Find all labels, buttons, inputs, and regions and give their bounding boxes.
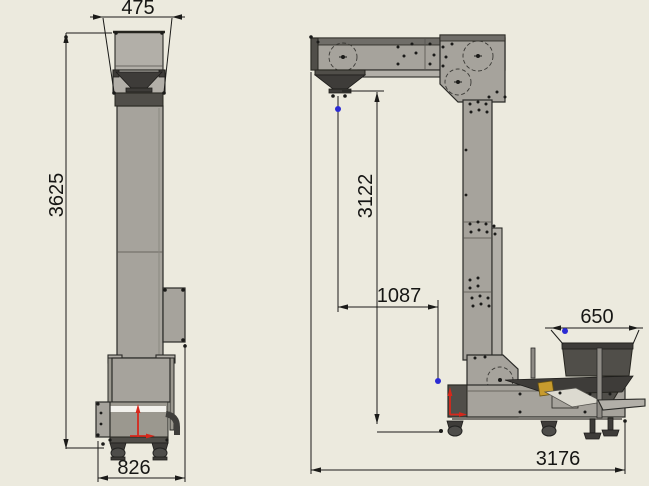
boot-body-front (112, 358, 170, 402)
funnel-flange-front (126, 88, 152, 92)
infeed-box-front (163, 288, 185, 342)
dim-label-side-hopper-width: 650 (580, 306, 613, 328)
dim-label-side-overall-length: 3176 (536, 448, 581, 470)
elevator-column-front (117, 106, 163, 358)
dim-label-front-overall-height: 3625 (46, 173, 68, 218)
hopper-support-left (531, 348, 535, 378)
caster-front-right (152, 443, 168, 460)
base-bottom-plate-front (110, 437, 168, 443)
dim-label-side-discharge-height: 3122 (355, 174, 377, 219)
dim-label-side-horizontal-offset: 1087 (377, 285, 422, 307)
base-side-panel (96, 402, 110, 437)
vertex-marker-blue-1 (335, 106, 341, 112)
head-dark-band (115, 93, 163, 106)
vertex-marker-blue-2 (435, 378, 441, 384)
z-conveyor-drawing: 475 3625 826 (0, 0, 649, 486)
elevator-head-front (115, 32, 163, 70)
caster-side-mid (541, 421, 557, 436)
technical-drawing-canvas: 475 3625 826 (0, 0, 649, 486)
caster-side-left (447, 421, 463, 436)
vertex-marker-blue-3 (562, 328, 568, 334)
dim-label-front-base-depth: 826 (117, 457, 150, 479)
dim-label-front-top-width: 475 (121, 0, 154, 19)
corner-housing-rail (440, 35, 505, 41)
